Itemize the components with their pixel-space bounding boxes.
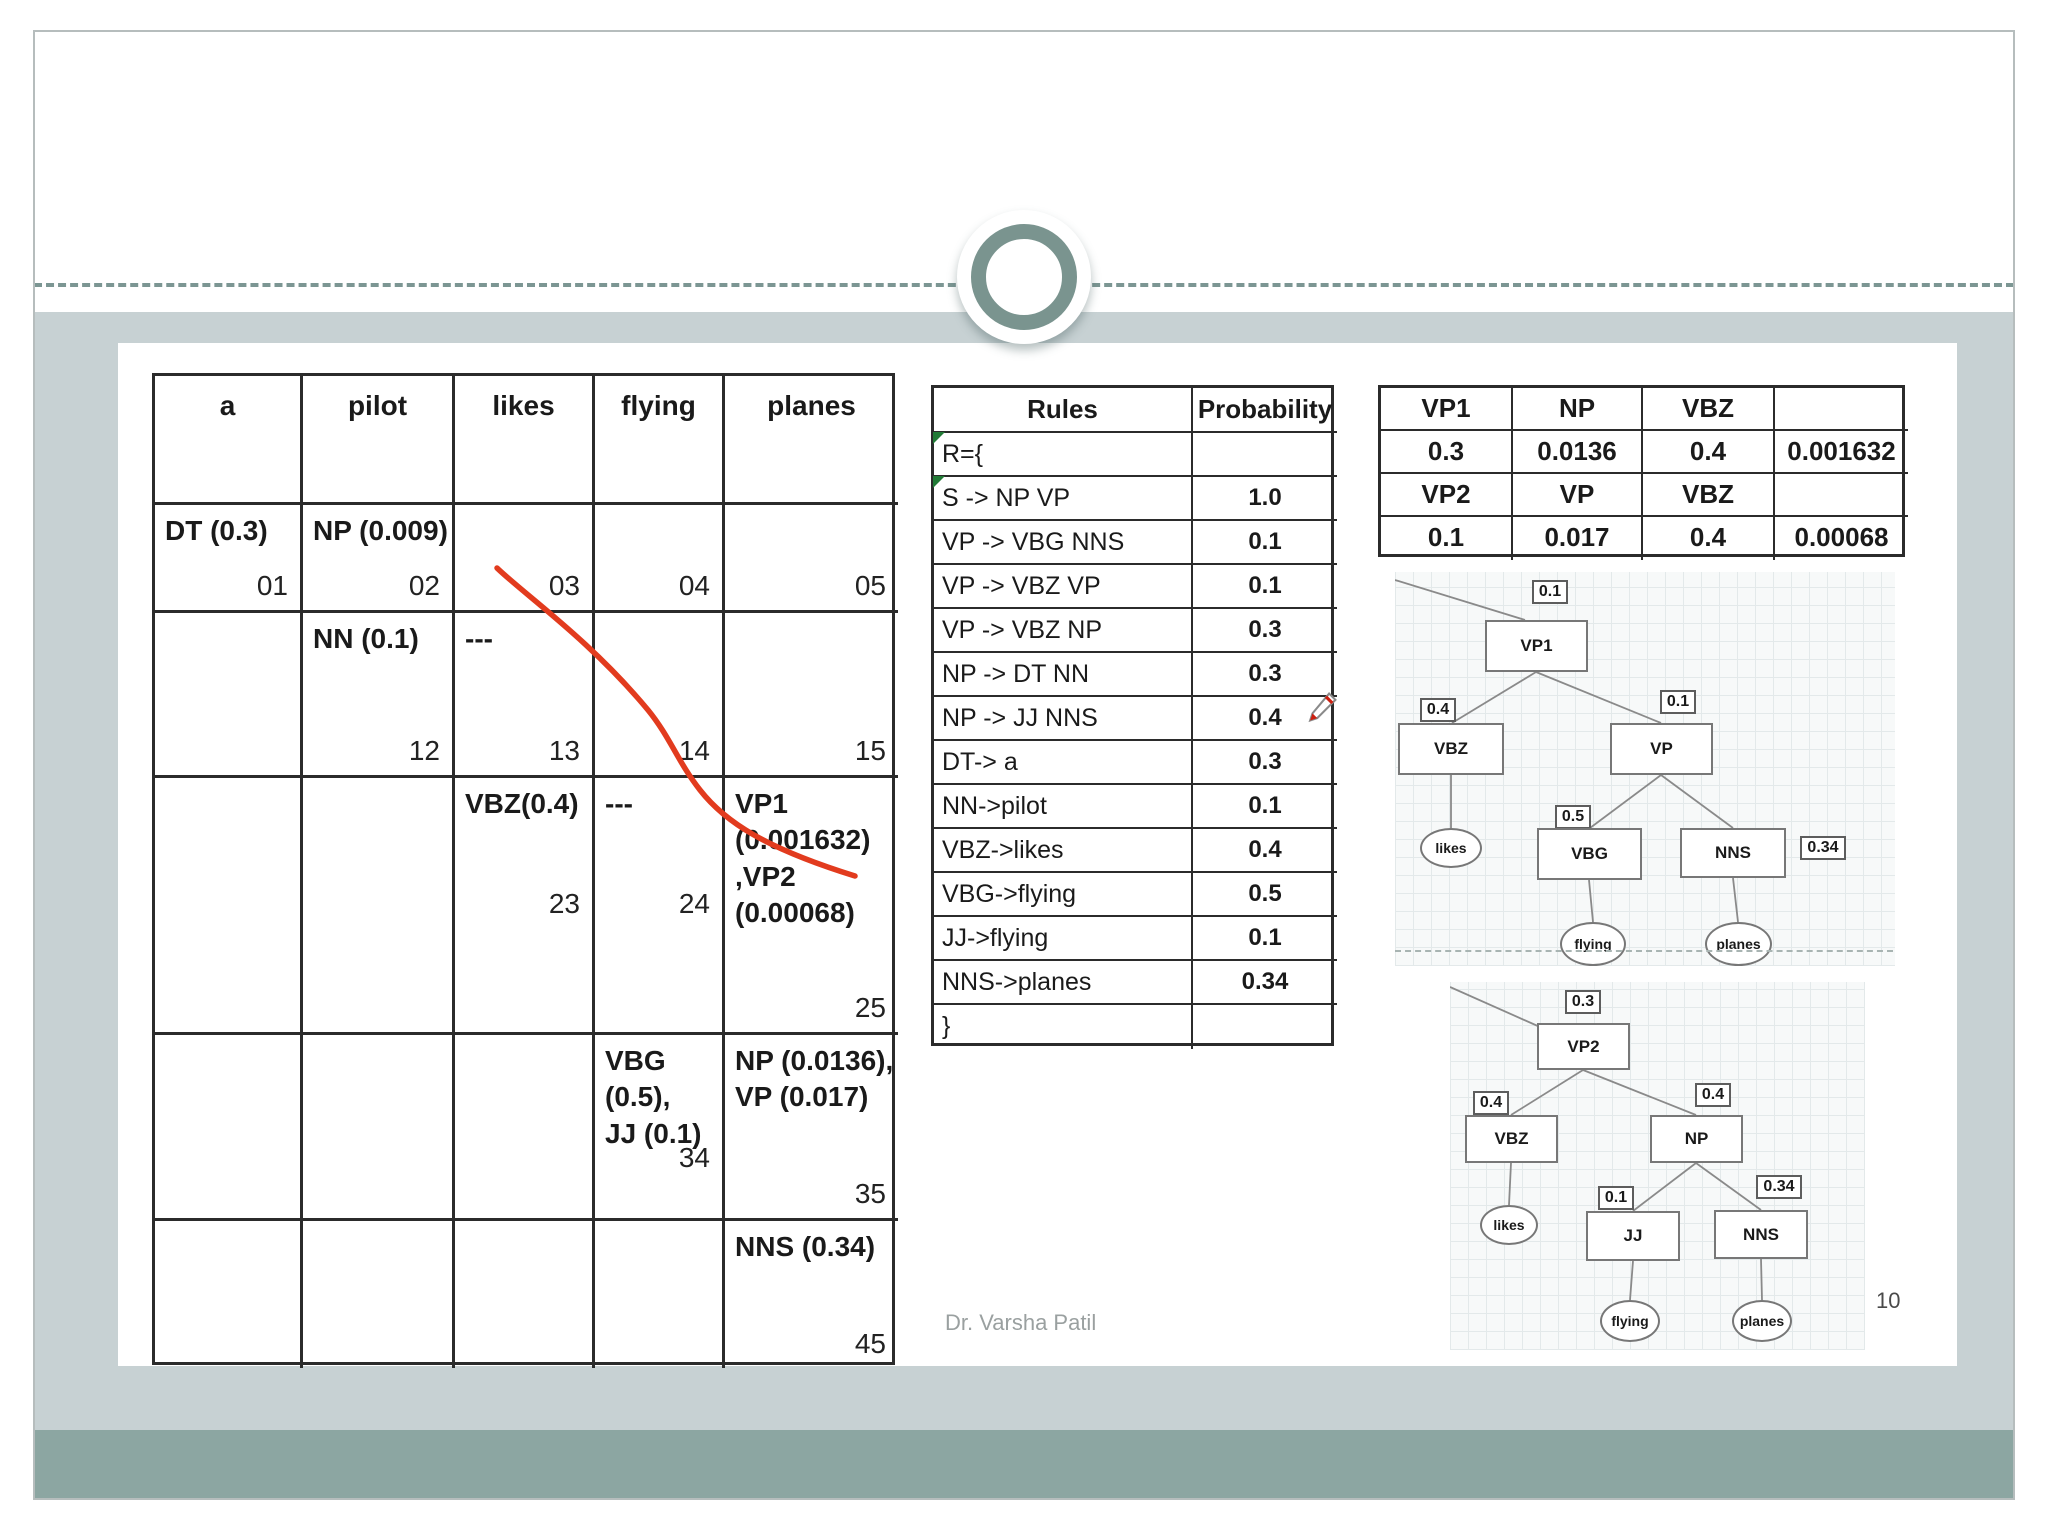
rule-cell: DT-> a [934,741,1193,785]
cyk-cell [595,1221,725,1368]
rule-cell: S -> NP VP [934,477,1193,521]
cyk-cell [155,613,303,778]
rule-cell: NP -> DT NN [934,653,1193,697]
cyk-cell [155,1221,303,1368]
tree-node: NNS [1680,828,1786,878]
cyk-cell-index: 35 [855,1178,886,1210]
prob-label: 0.1 [1598,1186,1634,1210]
probability-cell: 0.34 [1193,961,1337,1005]
tree-node: VBG [1537,828,1642,880]
prob-label: 0.4 [1473,1091,1509,1115]
summary-cell: 0.001632 [1775,431,1908,474]
summary-cell: VBZ [1643,388,1775,431]
cyk-cell: VBG (0.5), JJ (0.1)34 [595,1035,725,1221]
cyk-header-cell: likes [455,376,595,505]
excel-corner-marker-icon [933,432,945,444]
probability-cell: 0.1 [1193,785,1337,829]
probability-cell [1193,433,1337,477]
summary-cell: 0.0136 [1513,431,1643,474]
background-band-dark [34,1430,2014,1500]
tree-node: VBZ [1398,723,1504,775]
tree-node: VP1 [1485,620,1588,672]
cyk-cell: NNS (0.34)45 [725,1221,898,1368]
rule-cell: R={ [934,433,1193,477]
cyk-cell-index: 24 [679,888,710,920]
probability-cell: 0.5 [1193,873,1337,917]
cyk-cell: DT (0.3)01 [155,505,303,613]
tree-node: JJ [1586,1211,1680,1261]
cyk-cell [303,1035,455,1221]
prob-label: 0.34 [1756,1175,1802,1199]
page-number: 10 [1876,1288,1900,1314]
word-ellipse: flying [1600,1300,1660,1342]
cyk-cell-index: 05 [855,570,886,602]
cyk-cell-index: 02 [409,570,440,602]
cyk-cell-index: 15 [855,735,886,767]
cyk-cell: NN (0.1)12 [303,613,455,778]
cyk-cell: ---24 [595,778,725,1035]
tree-node: VBZ [1465,1115,1558,1163]
probability-cell: 0.1 [1193,565,1337,609]
cyk-cell-index: 03 [549,570,580,602]
summary-cell: 0.1 [1381,517,1513,560]
probability-header: Probability [1193,388,1337,433]
probability-cell: 0.1 [1193,521,1337,565]
summary-cell: 0.4 [1643,517,1775,560]
prob-label: 0.34 [1800,836,1846,860]
cyk-cell [303,778,455,1035]
rule-cell: VBG->flying [934,873,1193,917]
excel-corner-marker-icon [933,476,945,488]
summary-cell: 0.00068 [1775,517,1908,560]
cyk-table: a pilot likes flying planes DT (0.3)01 N… [152,373,895,1365]
parse-tree-vp2: 0.3 VP2 0.4 VBZ 0.4 NP likes 0.1 JJ 0.34… [1450,982,1865,1350]
cyk-cell: NP (0.0136), VP (0.017)35 [725,1035,898,1221]
cyk-cell-index: 04 [679,570,710,602]
cyk-cell-index: 12 [409,735,440,767]
rule-cell: VP -> VBZ NP [934,609,1193,653]
cyk-header-cell: flying [595,376,725,505]
word-ellipse: likes [1420,828,1482,868]
rule-cell: VP -> VBZ VP [934,565,1193,609]
word-ellipse: planes [1705,922,1772,966]
cyk-cell-index: 13 [549,735,580,767]
word-ellipse: flying [1560,922,1626,966]
cyk-cell: 14 [595,613,725,778]
summary-cell: NP [1513,388,1643,431]
prob-label: 0.1 [1660,690,1696,714]
cyk-cell-index: 01 [257,570,288,602]
probability-cell: 0.4 [1193,829,1337,873]
summary-cell: VP1 [1381,388,1513,431]
summary-cell [1775,388,1908,431]
cyk-cell-index: 23 [549,888,580,920]
summary-cell: 0.4 [1643,431,1775,474]
cyk-cell-index: 25 [855,992,886,1024]
rule-cell: JJ->flying [934,917,1193,961]
cyk-cell: 05 [725,505,898,613]
rule-cell: VP -> VBG NNS [934,521,1193,565]
tree-node: VP [1610,723,1713,775]
word-ellipse: likes [1480,1205,1538,1245]
rule-cell: NP -> JJ NNS [934,697,1193,741]
cyk-cell: 03 [455,505,595,613]
tree-node: VP2 [1537,1023,1630,1070]
cyk-header-cell: pilot [303,376,455,505]
cyk-cell: ---13 [455,613,595,778]
parse-tree-vp1: 0.1 VP1 0.4 VBZ 0.1 VP likes 0.5 VBG NNS… [1395,572,1895,966]
tree-node: NP [1650,1115,1743,1163]
tree-separator-line [1395,950,1893,952]
probability-cell: 1.0 [1193,477,1337,521]
footer-author: Dr. Varsha Patil [945,1310,1096,1336]
summary-cell: VBZ [1643,474,1775,517]
cyk-cell [455,1035,595,1221]
rule-cell: NNS->planes [934,961,1193,1005]
prob-label: 0.4 [1420,698,1456,722]
cyk-cell: 15 [725,613,898,778]
cyk-cell [303,1221,455,1368]
cyk-header-cell: planes [725,376,898,505]
cyk-cell [455,1221,595,1368]
cyk-cell-index: 34 [679,1142,710,1174]
summary-cell: 0.3 [1381,431,1513,474]
rule-cell: } [934,1005,1193,1049]
pen-cursor-icon [1303,688,1341,726]
probability-cell: 0.1 [1193,917,1337,961]
rules-table: Rules Probability R={ S -> NP VP1.0 VP -… [931,385,1334,1046]
cyk-cell: VP1 (0.001632) ,VP2 (0.00068)25 [725,778,898,1035]
rule-cell: NN->pilot [934,785,1193,829]
probability-summary-table: VP1 NP VBZ 0.3 0.0136 0.4 0.001632 VP2 V… [1378,385,1905,557]
cyk-cell: 04 [595,505,725,613]
probability-cell [1193,1005,1337,1049]
summary-cell: 0.017 [1513,517,1643,560]
cyk-cell-index: 45 [855,1328,886,1360]
word-ellipse: planes [1732,1300,1792,1342]
prob-label: 0.1 [1532,580,1568,604]
rule-cell: VBZ->likes [934,829,1193,873]
cyk-cell [155,1035,303,1221]
prob-label: 0.4 [1695,1083,1731,1107]
cyk-cell: VBZ(0.4)23 [455,778,595,1035]
probability-cell: 0.3 [1193,609,1337,653]
cyk-cell-index: 14 [679,735,710,767]
rules-header: Rules [934,388,1193,433]
cyk-cell [155,778,303,1035]
cyk-header-cell: a [155,376,303,505]
circle-ornament-icon [957,210,1091,344]
tree-edges [1450,982,1865,1350]
probability-cell: 0.3 [1193,741,1337,785]
tree-node: NNS [1714,1210,1808,1259]
slide: a pilot likes flying planes DT (0.3)01 N… [0,0,2048,1536]
prob-label: 0.3 [1565,990,1601,1014]
summary-cell: VP [1513,474,1643,517]
cyk-cell: NP (0.009)02 [303,505,455,613]
circle-ring-icon [971,224,1077,330]
prob-label: 0.5 [1555,805,1591,829]
summary-cell: VP2 [1381,474,1513,517]
summary-cell [1775,474,1908,517]
